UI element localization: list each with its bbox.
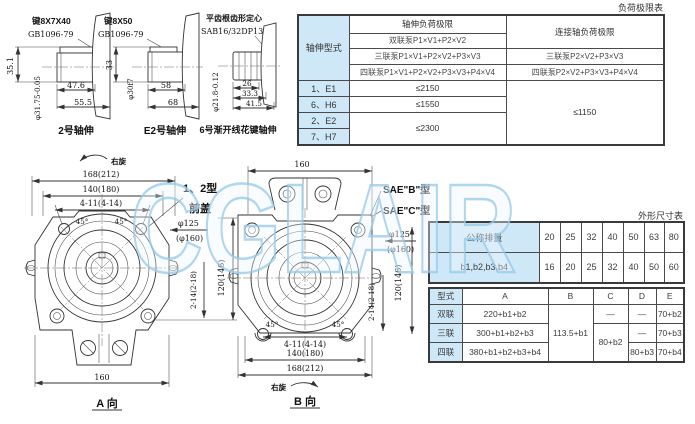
view-a-dim-2-14: 2-14(2-18) <box>189 271 198 309</box>
dim-table-title: 外形尺寸表 <box>560 209 683 222</box>
view-b-callout-sae-c: SAE"C"型 <box>383 204 430 217</box>
view-b-left-port-tab <box>229 268 238 284</box>
shaft2-dim-diameter: φ30f7 <box>126 78 135 100</box>
bolt-hole <box>59 224 70 235</box>
view-b-angle-left: 45° <box>266 320 279 329</box>
limit-value-1: ≤2150 <box>349 80 506 96</box>
shaft1-dim-diameter: φ31.75-0.05 <box>33 76 42 120</box>
view-b: 160 45° 45° 4-11(4-14) 140(18 <box>227 160 430 408</box>
c-merged-value: 80+b2 <box>593 323 628 362</box>
displacement-table: 公称排量 20 25 32 40 50 63 80 b1,b2,b3,b4 16… <box>428 221 685 284</box>
shaft2-key-label: 键8X50 <box>103 16 133 26</box>
view-a-dim-holes: 4-11(4-14) <box>80 199 122 208</box>
view-b-top-bracket <box>269 178 341 210</box>
bracket-hole <box>279 186 295 202</box>
view-b-dim-140: 140(180) <box>287 349 324 358</box>
shaft2-caption: E2号轴伸 <box>144 124 186 137</box>
shaft3-caption: 6号渐开线花键轴伸 <box>199 124 276 135</box>
double-a: 220+b1+b2 <box>462 304 548 323</box>
flange-views: 右旋 168(212) 140(180) 4-11(4-14) 45° 45° … <box>0 150 425 424</box>
displacement-value: 40 <box>602 222 623 252</box>
displacement-value: 32 <box>581 222 602 252</box>
view-b-dim-160: 160 <box>294 160 309 169</box>
view-b-dim-holes: 4-11(4-14) <box>284 340 326 349</box>
view-b-dim-2-14: 2-14(2-18) <box>367 283 376 321</box>
row-label-quad: 四联 <box>429 342 462 362</box>
leader-line <box>371 211 381 217</box>
shaft3-dim-diameter: φ21.8-0.12 <box>211 72 220 111</box>
displacement-value: 63 <box>644 222 664 252</box>
shaft1-dim-height: 35.1 <box>6 57 15 75</box>
formula-quad: 四联泵P1×V1+P2×V2+P3×V3+P4×V4 <box>349 64 506 80</box>
view-a: 右旋 168(212) 140(180) 4-11(4-14) 45° 45° … <box>24 155 237 410</box>
view-a-callout-line2: 前盖 <box>189 201 211 215</box>
view-b-caption: B 向 <box>294 394 316 408</box>
displacement-value: 80 <box>664 222 684 252</box>
double-e: 70+b2 <box>656 304 684 323</box>
col-header-d: D <box>628 288 656 304</box>
shaft2-key <box>150 47 177 52</box>
shaft-type-6-h6: 6、H6 <box>298 96 349 112</box>
view-b-dim-168: 168(212) <box>287 364 324 373</box>
load-limit-table: 轴伸型式 轴伸负荷极限 连接轴负荷极限 双联泵P1×V1+P2×V2 三联泵P1… <box>297 14 665 146</box>
load-table-corner: 轴伸型式 <box>298 15 349 80</box>
view-a-dia-160: (φ160) <box>176 234 203 243</box>
view-a-callout-line1: 1、2型 <box>183 181 217 195</box>
b-value: 16 <box>539 252 560 283</box>
view-a-angle-right: 45° <box>115 217 128 226</box>
rotation-arrow <box>291 383 318 387</box>
b-value: 50 <box>644 252 664 283</box>
view-b-right-port-tab <box>372 268 381 284</box>
shaft2-dim-height: 33 <box>105 60 114 70</box>
b-value: 40 <box>623 252 644 283</box>
bolt-hole <box>141 309 155 323</box>
shaft1-caption: 2号轴伸 <box>58 124 94 137</box>
row-label-triple: 三联 <box>429 323 462 342</box>
shaft3-flange <box>261 23 276 107</box>
formula-triple: 三联泵P1×V1+P2×V2+P3×V3 <box>349 48 506 64</box>
quad-a: 380+b1+b2+b3+b4 <box>462 342 548 362</box>
type-dimension-table: 型式 A B C D E 双联 220+b1+b2 113.5+b1 — — 7… <box>428 287 685 363</box>
col-header-e: E <box>656 288 684 304</box>
type-header: 型式 <box>429 288 462 304</box>
shaft-type-1-e1: 1、E1 <box>298 80 349 96</box>
view-b-dia-125: φ125 <box>389 230 410 239</box>
rotation-arrow <box>80 155 107 161</box>
view-a-rotation-label: 右旋 <box>110 156 126 166</box>
col-header-b: B <box>548 288 593 304</box>
view-a-caption: A 向 <box>96 396 118 410</box>
b-value: 25 <box>581 252 602 283</box>
view-b-dim-120: 120(146) <box>394 265 403 302</box>
view-b-rotation-label: 右旋 <box>270 382 286 392</box>
col-header-c: C <box>593 288 628 304</box>
triple-a: 300+b1+b2+b3 <box>462 323 548 342</box>
bolt-hole <box>50 309 64 323</box>
b-values-label: b1,b2,b3,b4 <box>429 252 539 283</box>
view-a-dim-168: 168(212) <box>83 170 120 179</box>
limit-value-3: ≤2300 <box>349 112 506 145</box>
shaft2-dim-len1: 58 <box>161 81 171 90</box>
b-value: 32 <box>602 252 623 283</box>
shaft-type-2-e2: 2、E2 <box>298 112 349 128</box>
triple-e: 70+b3 <box>656 323 684 342</box>
shaft2-flange <box>182 13 199 119</box>
shaft1-key-label: 键8X7X40 <box>31 16 71 26</box>
shaft-drawing-no6-spline: 平齿根齿形定心 SAB16/32DP13齿 φ21.8-0.12 26 33.3… <box>199 13 281 135</box>
bracket-hole <box>315 186 331 202</box>
shaft2-dim-len2: 68 <box>168 98 178 107</box>
load-table-title: 负荷极限表 <box>540 1 663 14</box>
bolt-hole <box>258 329 269 340</box>
limit-value-2: ≤1550 <box>349 96 506 112</box>
load-table-col-shaft: 轴伸负荷极限 <box>349 15 506 33</box>
double-c: — <box>593 304 628 323</box>
quad-d: 80+b3 <box>628 342 656 362</box>
view-a-dim-120: 120(146) <box>217 260 226 297</box>
shaft-drawing-e2: 键8X50 GB1096-79 33 φ30f7 58 68 E2号轴伸 <box>98 13 203 137</box>
shaft3-dim-len2: 33.3 <box>242 89 258 98</box>
b-all-value: 113.5+b1 <box>548 304 593 362</box>
view-a-angle-left: 45° <box>76 217 89 226</box>
shaft3-key-label: 平齿根齿形定心 <box>206 13 262 23</box>
displacement-value: 50 <box>623 222 644 252</box>
shaft1-std-label: GB1096-79 <box>28 30 74 39</box>
col-header-a: A <box>462 288 548 304</box>
shaft3-dim-len1: 26 <box>242 79 252 88</box>
shaft1-body <box>57 53 95 82</box>
bolt-hole <box>245 223 259 237</box>
view-b-callout-sae-b: SAE"B"型 <box>383 183 430 196</box>
bolt-hole <box>342 329 353 340</box>
shaft1-dim-len1: 47.6 <box>67 81 85 90</box>
row-label-double: 双联 <box>429 304 462 323</box>
shaft3-std-label: SAB16/32DP13齿 <box>201 27 271 36</box>
shaft2-std-label: GB1096-79 <box>98 30 144 39</box>
shaft1-dim-len2: 55.5 <box>74 98 92 107</box>
view-b-angle-right: 45° <box>332 320 345 329</box>
displacement-value: 20 <box>539 222 560 252</box>
load-table-col-joint: 连接轴负荷极限 <box>506 15 664 48</box>
view-a-dia-125: φ125 <box>178 219 199 228</box>
view-b-dia-160: (φ160) <box>387 245 414 254</box>
bolt-hole <box>351 223 365 237</box>
view-a-dim-160: 160 <box>94 373 109 382</box>
joint-limit-value: ≤1150 <box>506 80 664 145</box>
displacement-value: 25 <box>560 222 581 252</box>
b-value: 20 <box>560 252 581 283</box>
formula-quad-joint: 四联泵P2×V2+P3×V3+P4×V4 <box>506 64 664 80</box>
view-a-dim-140: 140(180) <box>83 185 120 194</box>
shaft3-dim-len3: 41.5 <box>246 99 262 108</box>
displacement-label: 公称排量 <box>429 222 539 252</box>
formula-triple-joint: 三联泵P2×V2+P3×V3 <box>506 48 664 64</box>
formula-double: 双联泵P1×V1+P2×V2 <box>349 33 506 48</box>
b-value: 60 <box>664 252 684 283</box>
shaft1-key <box>60 47 93 53</box>
triple-d: — <box>628 323 656 342</box>
shaft-type-7-h7: 7、H7 <box>298 128 349 145</box>
double-d: — <box>628 304 656 323</box>
quad-e: 70+b4 <box>656 342 684 362</box>
shaft-drawings: 键8X7X40 GB1096-79 35.1 φ31.75-0.05 47.6 … <box>0 0 295 150</box>
